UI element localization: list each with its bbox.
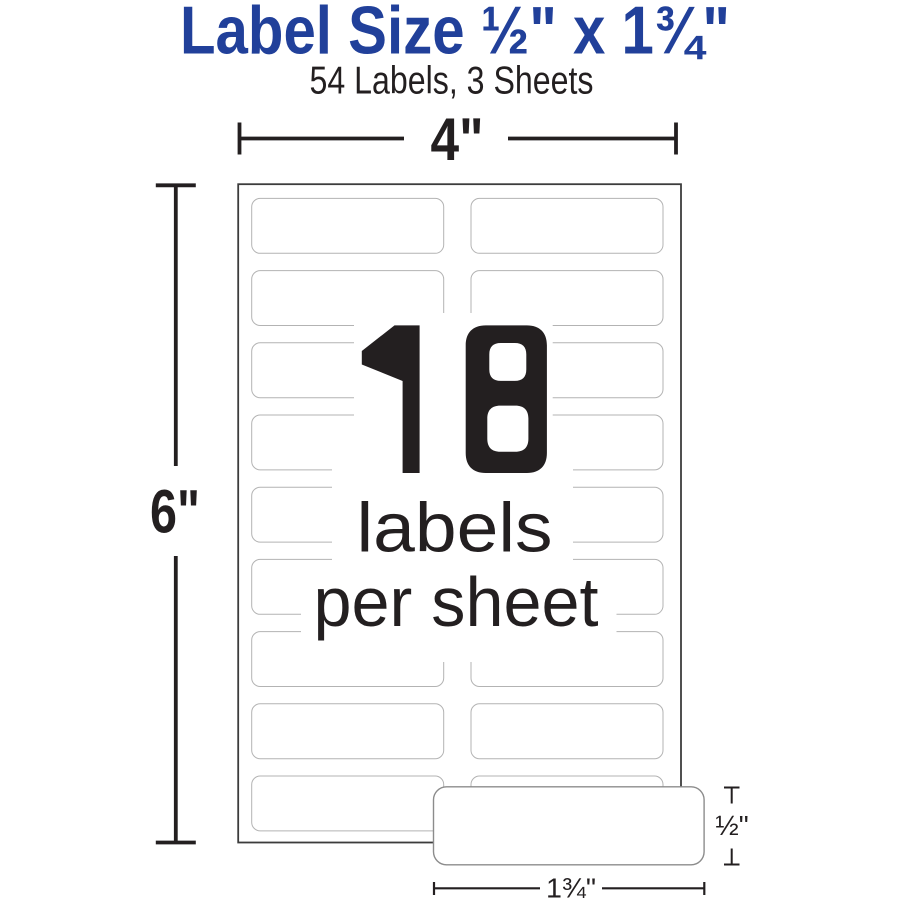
svg-text:1¾": 1¾" <box>546 873 596 900</box>
svg-text:½": ½" <box>715 810 748 841</box>
svg-text:54 Labels, 3 Sheets: 54 Labels, 3 Sheets <box>310 59 594 102</box>
svg-text:4": 4" <box>431 106 484 173</box>
svg-text:6": 6" <box>150 478 200 546</box>
svg-text:per sheet: per sheet <box>314 563 599 641</box>
svg-text:Label Size ½" x 1¾": Label Size ½" x 1¾" <box>180 0 730 69</box>
svg-text:labels: labels <box>357 489 553 567</box>
